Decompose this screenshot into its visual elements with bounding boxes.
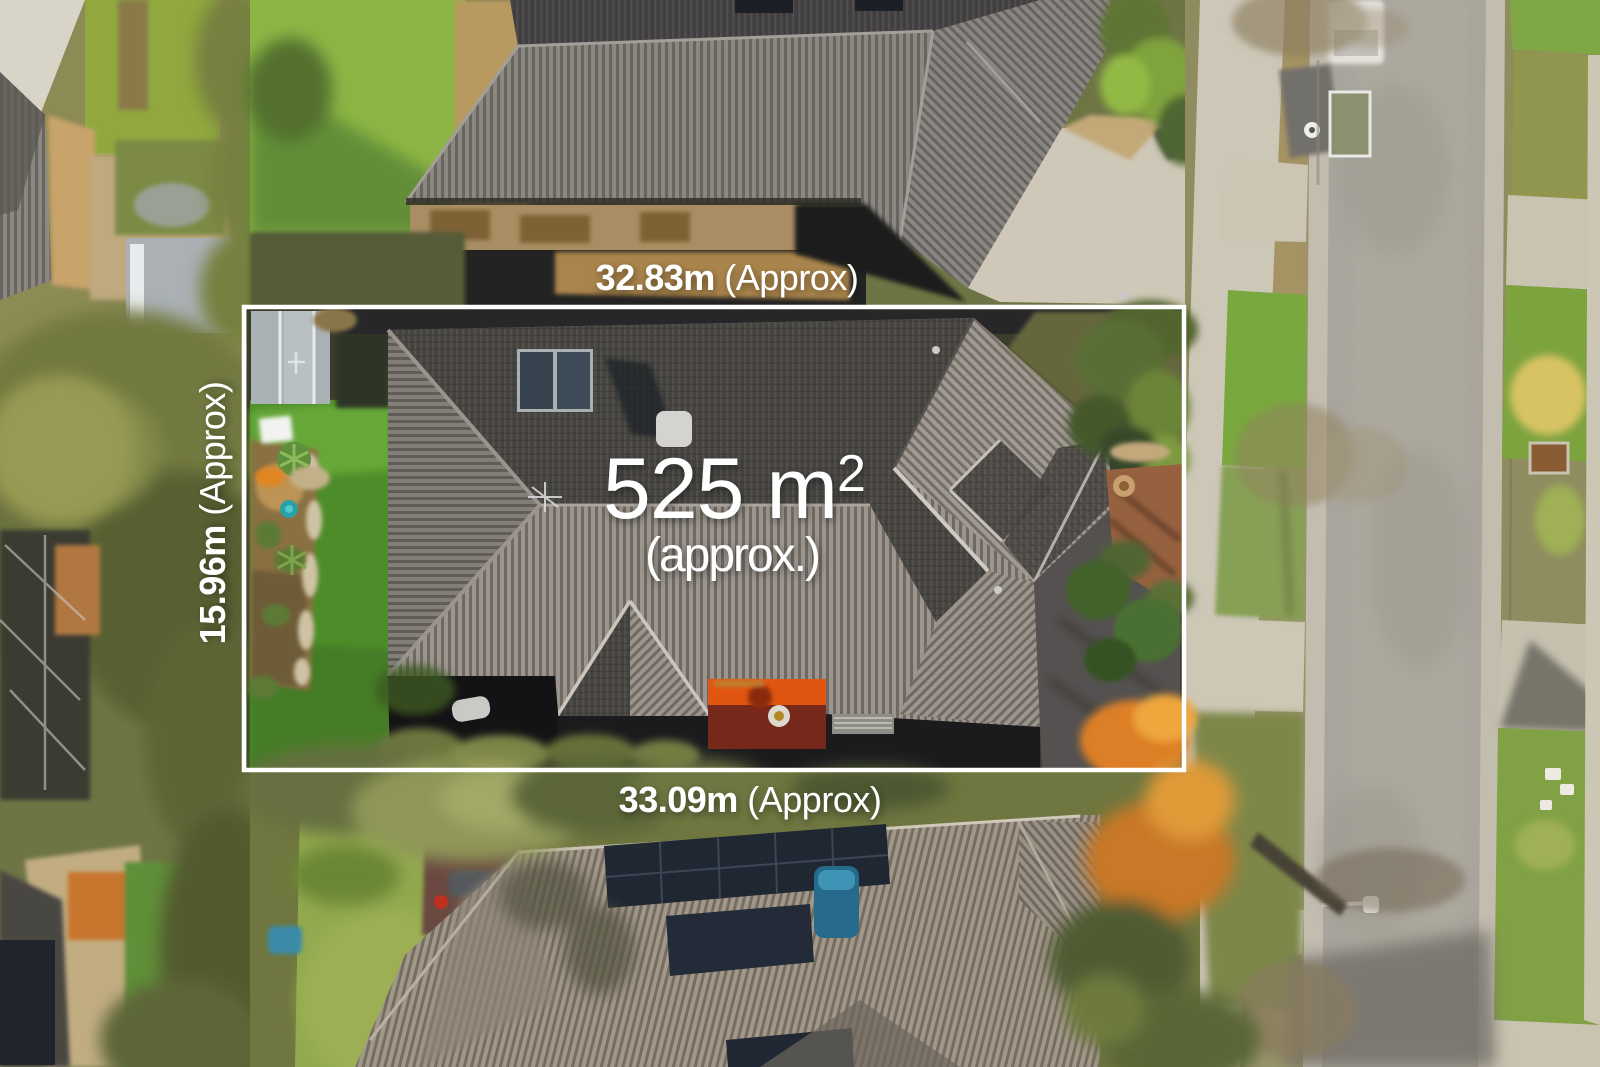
- svg-text:525 m2: 525 m2: [603, 441, 865, 537]
- svg-text:32.83m (Approx): 32.83m (Approx): [596, 257, 859, 298]
- svg-text:(approx.): (approx.): [645, 529, 819, 582]
- svg-text:33.09m (Approx): 33.09m (Approx): [619, 779, 882, 820]
- svg-text:15.96m (Approx): 15.96m (Approx): [192, 382, 233, 645]
